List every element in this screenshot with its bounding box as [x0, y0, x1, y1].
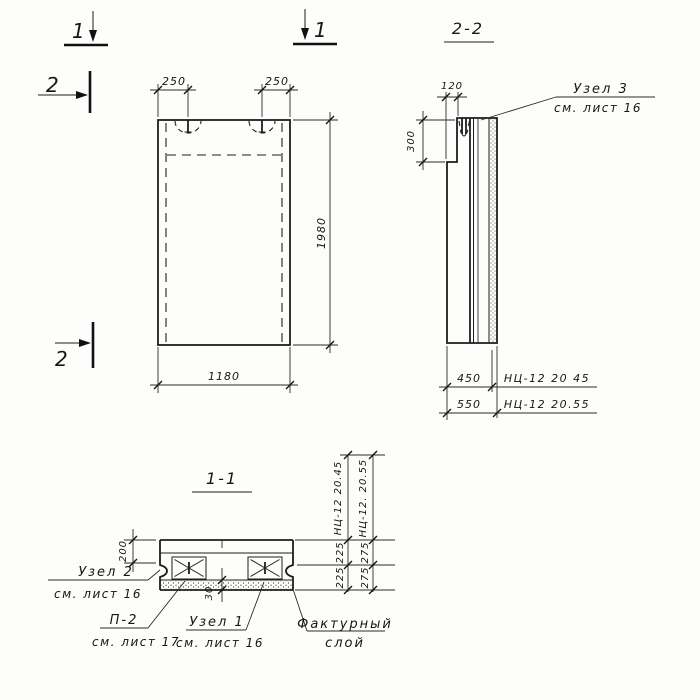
marker-label: 2: [46, 73, 59, 97]
dim-250-right: 250: [265, 75, 289, 88]
panel-mark-55: НЦ-12 20.55: [504, 398, 590, 411]
facing-layer-hatch: [490, 119, 497, 342]
lifting-hook-icon: [249, 120, 275, 133]
section-marker-1-left: 1: [64, 11, 108, 45]
dim-1980: 1980: [315, 217, 328, 249]
right-arrow-icon: [76, 91, 88, 99]
panel-outline: [158, 120, 290, 345]
lifting-hook-icon: [175, 120, 201, 133]
drawing-sheet: 1 1 2 2: [0, 0, 700, 700]
hook-anchor-icon: [459, 118, 470, 136]
section-2-2: 2-2: [406, 19, 655, 420]
section-marker-1-right: 1: [293, 9, 337, 44]
dim-300: 300: [406, 130, 417, 152]
callout-ref: см. лист 17: [92, 635, 180, 649]
callout-node2: Узел 2 см. лист 16: [48, 565, 160, 601]
thickness-columns: НЦ-12 20.45 НЦ-12. 20.55 225 225 275 275: [295, 451, 395, 594]
down-arrow-icon: [301, 28, 309, 40]
dim-275-upper: 275: [360, 541, 371, 563]
marker-label: 1: [314, 18, 327, 42]
panel-mark-45: НЦ-12 20 45: [504, 372, 590, 385]
callout-ref: см. лист 16: [54, 587, 142, 601]
callout-node3: Узел 3 см. лист 16: [481, 82, 655, 120]
void-bowtie-icon: [172, 557, 206, 579]
dim-225-lower: 225: [335, 566, 346, 588]
column-mark-45: НЦ-12 20.45: [333, 461, 344, 535]
dim-200: 200: [118, 540, 129, 562]
dim-250-left: 250: [162, 75, 186, 88]
section-1-1: 1-1 200: [48, 451, 395, 651]
callout-label: Узел 3: [573, 82, 629, 97]
down-arrow-icon: [89, 30, 97, 42]
dim-120: 120: [441, 81, 463, 92]
front-view: 250 250 1980 1180: [150, 75, 338, 393]
callout-ref: см. лист 16: [554, 101, 642, 115]
callout-label: П-2: [110, 613, 139, 628]
callout-label-2: слой: [325, 636, 365, 651]
callout-facing-layer: Фактурный слой: [293, 589, 393, 651]
dim-30: 30: [204, 586, 215, 601]
section-title: 2-2: [452, 19, 484, 38]
callout-ref: см. лист 16: [176, 636, 264, 650]
dim-450: 450: [457, 372, 481, 385]
dim-225-upper: 225: [335, 541, 346, 563]
right-arrow-icon: [79, 339, 91, 347]
section-marker-2-top: 2: [38, 71, 90, 113]
callout-label: Фактурный: [297, 617, 393, 632]
void-bowtie-icon: [248, 557, 282, 579]
engineering-drawing: 1 1 2 2: [0, 0, 700, 700]
callout-label: Узел 1: [189, 615, 245, 630]
column-mark-55: НЦ-12. 20.55: [358, 459, 369, 538]
facing-layer-hatch: [161, 582, 292, 590]
marker-label: 1: [72, 19, 85, 43]
dim-275-lower: 275: [360, 566, 371, 588]
dim-550: 550: [457, 398, 481, 411]
dim-1180: 1180: [208, 370, 240, 383]
section-title: 1-1: [206, 469, 238, 488]
section-marker-2-bottom: 2: [55, 322, 93, 371]
marker-label: 2: [55, 347, 68, 371]
callout-label: Узел 2: [78, 565, 134, 580]
